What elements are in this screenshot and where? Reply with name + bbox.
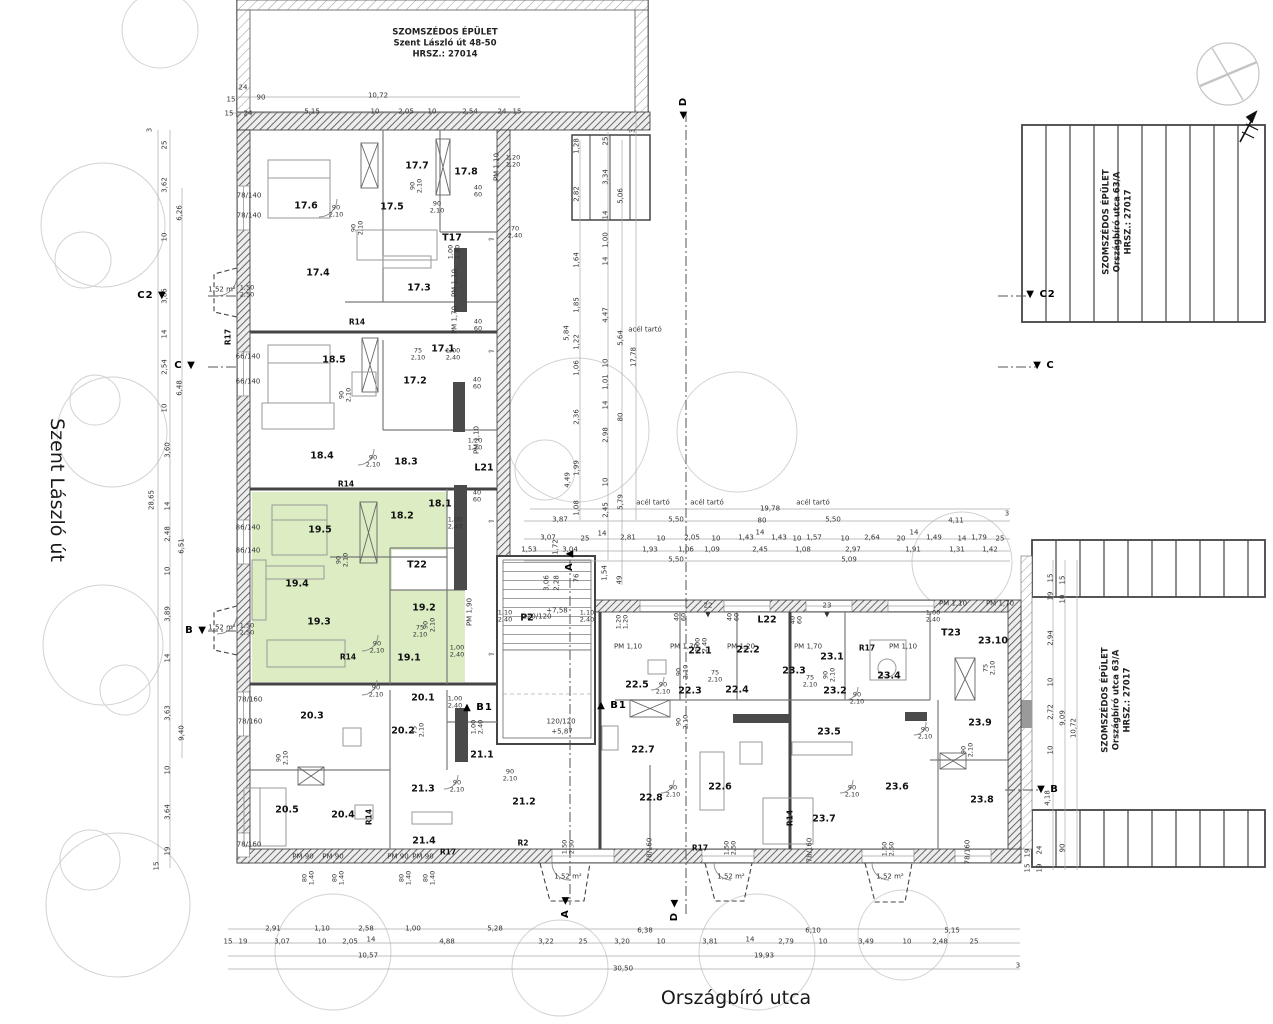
dimension-label: 5,15: [944, 928, 960, 935]
room-number-label: 22.6: [708, 782, 731, 792]
dimension-pair-label: 902,10: [450, 780, 464, 795]
annotation-label: 120/120: [546, 719, 575, 726]
annotation-label: 120/120: [522, 614, 551, 621]
dimension-pair-label: 902,10: [351, 221, 366, 235]
dimension-label: 9,40: [179, 725, 186, 741]
dimension-pair-label: 752,10: [708, 670, 722, 685]
dimension-label: 5,09: [841, 557, 857, 564]
annotation-label: R17: [224, 329, 232, 345]
dimension-pair-label: 902,10: [276, 751, 291, 765]
dimension-label: 25: [579, 939, 588, 946]
neighbor-building-label-right-upper: SZOMSZÉDOS ÉPÜLET Országbíró utca 63/A H…: [1101, 169, 1134, 274]
dimension-pair-label: 902,10: [961, 743, 976, 757]
dimension-label: 10,72: [1071, 718, 1078, 738]
dimension-label: 10: [1060, 595, 1067, 604]
section-marker: D ◀: [670, 899, 680, 921]
dimension-pair-label: 1,002,40: [926, 610, 940, 625]
dimension-label: 10: [712, 536, 721, 543]
dimension-pair-label: 1,502,50: [724, 841, 739, 855]
dimension-label: 90: [1060, 844, 1067, 853]
dimension-label: 2,94: [1048, 630, 1055, 646]
dimension-pair-label: 1,502,50: [240, 623, 254, 638]
dimension-label: 15: [224, 939, 233, 946]
dimension-pair-label: 902,10: [503, 769, 517, 784]
room-number-label: 22.3: [678, 686, 701, 696]
dimension-label: 10: [165, 567, 172, 576]
dimension-label: 5,50: [668, 557, 684, 564]
dimension-pair-label: 1,002,40: [471, 720, 486, 734]
dimension-label: 10,72: [368, 93, 388, 100]
dimension-label: 1,08: [574, 500, 581, 516]
dimension-pair-label: 1,502,50: [562, 840, 577, 854]
dimension-pair-label: 1,502,50: [240, 285, 254, 300]
room-number-label: L22: [757, 615, 776, 625]
annotation-label: acél tartó: [690, 500, 724, 507]
room-number-label: 22.5: [625, 680, 648, 690]
dimension-label: 2,05: [342, 939, 358, 946]
dimension-label: 25: [996, 536, 1005, 543]
dimension-label: 4,11: [948, 518, 964, 525]
dimension-label: 2,64: [864, 535, 880, 542]
dimension-label: 90: [257, 95, 266, 102]
dimension-pair-label: 4060: [790, 616, 805, 624]
dimension-label: 14: [367, 937, 376, 944]
section-marker: B ▼: [185, 626, 207, 636]
dimension-label: 19: [239, 939, 248, 946]
dimension-pair-label: 902,10: [676, 715, 691, 729]
dimension-label: 10: [1048, 678, 1055, 687]
dimension-pair-label: 902,10: [366, 455, 380, 470]
dimension-pair-label: 902,10: [845, 785, 859, 800]
room-number-label: 19.4: [285, 579, 308, 589]
street-label-bottom: Országbíró utca: [661, 987, 811, 1009]
dimension-label: 10: [841, 536, 850, 543]
dimension-label: 5,15: [304, 109, 320, 116]
room-number-label: 21.3: [411, 784, 434, 794]
annotation-label: 86/140: [236, 548, 261, 555]
dimension-label: 1,06: [574, 360, 581, 376]
dimension-pair-label: 902,10: [329, 205, 343, 220]
room-number-label: 17.8: [454, 167, 477, 177]
dimension-label: 2,36: [574, 409, 581, 425]
annotation-label: acél tartó: [628, 327, 662, 334]
room-number-label: 22.8: [639, 793, 662, 803]
dimension-label: 2,72: [1048, 704, 1055, 720]
dimension-label: 5,50: [668, 517, 684, 524]
dimension-pair-label: 902,10: [656, 682, 670, 697]
dimension-label: 3,64: [165, 804, 172, 820]
dimension-pair-label: 1,102,40: [498, 610, 512, 625]
dimension-label: 3: [1016, 963, 1020, 970]
dimension-label: 15: [1048, 574, 1055, 583]
dimension-pair-label: 801,40: [399, 871, 414, 885]
dimension-label: 14: [756, 530, 765, 537]
dimension-pair-label: 801,40: [332, 871, 347, 885]
dimension-label: 2,91: [265, 926, 281, 933]
dimension-label: 2,05: [398, 109, 414, 116]
dimension-label: 25: [970, 939, 979, 946]
dimension-pair-label: 1,002,40: [695, 638, 710, 652]
room-number-label: 18.3: [394, 457, 417, 467]
dimension-label: 25: [581, 536, 590, 543]
annotation-label: PM 1,90: [467, 598, 474, 626]
annotation-label: R14: [786, 810, 794, 826]
room-number-label: 20.4: [331, 810, 354, 820]
dimension-pair-label: 752,10: [412, 723, 427, 737]
room-number-label: 23.7: [812, 814, 835, 824]
dimension-pair-label: 801,40: [302, 871, 317, 885]
dimension-pair-label: 902,10: [823, 668, 838, 682]
dimension-pair-label: 1,002,40: [448, 245, 463, 259]
dimension-label: 20: [897, 536, 906, 543]
room-number-label: 21.2: [512, 797, 535, 807]
dimension-label: 3: [147, 128, 154, 132]
dimension-label: 1,93: [642, 547, 658, 554]
dimension-pair-label: 902,10: [676, 665, 691, 679]
section-marker: ◀ D: [679, 97, 689, 119]
annotation-label: PM 1,10: [939, 601, 967, 608]
room-number-label: 23.6: [885, 782, 908, 792]
dimension-label: 5,79: [618, 494, 625, 510]
annotation-label: acél tartó: [796, 500, 830, 507]
dimension-label: 1,91: [905, 547, 921, 554]
annotation-label: PM 90: [387, 854, 408, 861]
annotation-label: ⇦: [488, 237, 494, 244]
dimension-label: 15: [225, 111, 234, 118]
dimension-label: 76: [574, 574, 581, 583]
dimension-pair-label: 1,002,40: [448, 696, 462, 711]
dimension-label: 1,42: [982, 547, 998, 554]
section-marker: ▲ B1: [597, 701, 627, 711]
dimension-label: 9,09: [1060, 710, 1067, 726]
room-number-label: 18.1: [428, 499, 451, 509]
neighbor-building-label-right-lower: SZOMSZÉDOS ÉPÜLET Országbíró utca 63/A H…: [1100, 647, 1133, 752]
dimension-label: 24: [244, 111, 253, 118]
annotation-label: ▼: [824, 612, 829, 619]
dimension-label: 3,20: [614, 939, 630, 946]
dimension-pair-label: 4060: [727, 613, 742, 621]
dimension-label: 1,28: [574, 138, 581, 154]
dimension-label: 14: [165, 502, 172, 511]
section-marker: ▼ C: [1033, 361, 1055, 371]
dimension-label: 3,87: [552, 517, 568, 524]
dimension-label: 3,62: [162, 177, 169, 193]
dimension-pair-label: 1,002,40: [450, 645, 464, 660]
dimension-label: 3,81: [702, 939, 718, 946]
dimension-label: 3: [1005, 511, 1009, 518]
floor-plan-page: Szent László út Országbíró utca SZOMSZÉD…: [0, 0, 1273, 1024]
label-layer: Szent László út Országbíró utca SZOMSZÉD…: [0, 0, 1273, 1024]
annotation-label: 1,52 m²: [717, 874, 744, 881]
dimension-label: 1,43: [738, 535, 754, 542]
annotation-label: ⇦: [488, 652, 494, 659]
dimension-label: 15: [1025, 864, 1032, 873]
dimension-pair-label: 1,002,40: [448, 517, 462, 532]
dimension-label: 2,98: [603, 427, 610, 443]
dimension-label: 2,05: [684, 535, 700, 542]
room-number-label: 21.1: [470, 750, 493, 760]
dimension-label: 14: [603, 401, 610, 410]
dimension-label: 2,58: [358, 926, 374, 933]
dimension-pair-label: 902,10: [666, 785, 680, 800]
dimension-pair-label: 902,10: [918, 727, 932, 742]
room-number-label: 18.2: [390, 511, 413, 521]
dimension-label: 2,54: [462, 109, 478, 116]
dimension-label: 10: [165, 766, 172, 775]
dimension-pair-label: 902,10: [410, 179, 425, 193]
room-number-label: T23: [941, 628, 961, 638]
dimension-pair-label: 702,40: [508, 226, 522, 241]
annotation-label: 78/160: [647, 838, 654, 863]
dimension-label: 15: [227, 97, 236, 104]
dimension-pair-label: 902,10: [430, 201, 444, 216]
annotation-label: 78/160: [807, 838, 814, 863]
dimension-label: 1,57: [806, 535, 822, 542]
room-number-label: 19.1: [397, 653, 420, 663]
dimension-label: 5,84: [564, 325, 571, 341]
annotation-label: 78/160: [237, 842, 262, 849]
room-number-label: 17.3: [407, 283, 430, 293]
annotation-label: R17: [440, 848, 456, 856]
room-number-label: 23.2: [823, 686, 846, 696]
dimension-label: 14: [910, 530, 919, 537]
dimension-label: 10: [603, 359, 610, 368]
dimension-label: 1,54: [602, 565, 609, 581]
dimension-pair-label: 4060: [473, 490, 481, 505]
dimension-label: 3,07: [540, 535, 556, 542]
dimension-label: 1,49: [926, 535, 942, 542]
room-number-label: 17.5: [380, 202, 403, 212]
annotation-label: PM 1,70: [452, 306, 459, 334]
annotation-label: ▼: [705, 612, 710, 619]
dimension-label: 3: [630, 129, 637, 133]
room-number-label: 20.5: [275, 805, 298, 815]
dimension-label: 2,97: [845, 547, 861, 554]
dimension-label: 2,28: [554, 575, 561, 591]
dimension-label: 1,22: [574, 334, 581, 350]
annotation-label: 23: [823, 603, 832, 610]
dimension-label: 3,06: [544, 575, 551, 591]
room-number-label: 23.10: [978, 636, 1008, 646]
annotation-label: R14: [338, 480, 354, 488]
annotation-label: 1,52 m²: [208, 625, 235, 632]
annotation-label: 1,52 m²: [876, 874, 903, 881]
room-number-label: 18.4: [310, 451, 333, 461]
dimension-label: 3,07: [274, 939, 290, 946]
annotation-label: 1,52 m²: [554, 874, 581, 881]
room-number-label: 21.4: [412, 836, 435, 846]
annotation-label: 78/160: [965, 840, 972, 865]
dimension-pair-label: 801,40: [423, 871, 438, 885]
dimension-label: 1,72: [553, 539, 560, 555]
annotation-label: PM 1,20: [727, 644, 755, 651]
room-number-label: 18.5: [322, 355, 345, 365]
dimension-label: 14: [165, 654, 172, 663]
room-number-label: T22: [407, 560, 427, 570]
room-number-label: 17.6: [294, 201, 317, 211]
dimension-label: 19: [1025, 849, 1032, 858]
dimension-label: 1,06: [678, 547, 694, 554]
dimension-label: 10: [657, 939, 666, 946]
dimension-label: 10: [903, 939, 912, 946]
dimension-label: 1,00: [603, 232, 610, 248]
dimension-label: 24: [239, 85, 248, 92]
dimension-label: 2,48: [165, 526, 172, 542]
dimension-label: 3,49: [858, 939, 874, 946]
section-marker: ▲ B1: [463, 703, 493, 713]
dimension-pair-label: 1,201,20: [468, 438, 482, 453]
annotation-label: 78/140: [237, 213, 262, 220]
dimension-label: 1,10: [314, 926, 330, 933]
dimension-label: 80: [758, 518, 767, 525]
dimension-label: 3,89: [165, 606, 172, 622]
dimension-label: 17,78: [631, 347, 638, 367]
dimension-label: 1,01: [603, 374, 610, 390]
dimension-label: 6,38: [637, 928, 653, 935]
dimension-label: 6,10: [805, 928, 821, 935]
annotation-label: 78/160: [238, 697, 263, 704]
room-number-label: 20.1: [411, 693, 434, 703]
dimension-label: 3,34: [603, 169, 610, 185]
dimension-label: 2,48: [932, 939, 948, 946]
room-number-label: 22.7: [631, 745, 654, 755]
annotation-label: R2: [518, 839, 529, 847]
room-number-label: 17.4: [306, 268, 329, 278]
dimension-pair-label: 902,10: [370, 641, 384, 656]
dimension-label: 19,93: [754, 953, 774, 960]
room-number-label: L21: [474, 463, 493, 473]
room-number-label: 17.2: [403, 376, 426, 386]
dimension-label: 2,54: [162, 359, 169, 375]
dimension-label: 1,43: [771, 535, 787, 542]
dimension-label: 2,81: [620, 535, 636, 542]
section-marker: A ◀: [561, 896, 571, 918]
dimension-label: 80: [618, 413, 625, 422]
room-number-label: 23.9: [968, 718, 991, 728]
dimension-label: 1,00: [405, 926, 421, 933]
dimension-label: 10,57: [358, 953, 378, 960]
room-number-label: 17.7: [405, 161, 428, 171]
section-marker: ▼ C2: [1026, 290, 1055, 300]
dimension-label: 10: [819, 939, 828, 946]
dimension-label: 14: [603, 211, 610, 220]
dimension-label: 24: [1037, 846, 1044, 855]
annotation-label: PM 1,10: [494, 153, 501, 181]
dimension-label: 49: [617, 576, 624, 585]
dimension-label: 3,22: [538, 939, 554, 946]
annotation-label: acél tartó: [636, 500, 670, 507]
dimension-pair-label: 1,201,20: [616, 615, 631, 629]
dimension-pair-label: 902,10: [850, 692, 864, 707]
dimension-pair-label: 752,10: [411, 348, 425, 363]
annotation-label: R17: [692, 844, 708, 852]
dimension-label: 5,28: [487, 926, 503, 933]
dimension-label: 15: [154, 862, 161, 871]
dimension-label: 10: [657, 536, 666, 543]
annotation-label: R14: [365, 809, 373, 825]
dimension-label: 4,47: [603, 307, 610, 323]
dimension-pair-label: 4060: [473, 377, 481, 392]
dimension-label: 1,99: [574, 460, 581, 476]
dimension-label: 30,50: [613, 966, 633, 973]
neighbor-building-label-top: SZOMSZÉDOS ÉPÜLET Szent László út 48-50 …: [392, 27, 497, 60]
section-marker: C ▼: [174, 361, 196, 371]
dimension-label: 15: [513, 109, 522, 116]
dimension-label: 19: [1037, 864, 1044, 873]
dimension-label: 1,31: [949, 547, 965, 554]
annotation-label: R14: [340, 653, 356, 661]
annotation-label: PM 1,10: [614, 644, 642, 651]
dimension-pair-label: 1,502,50: [882, 842, 897, 856]
dimension-label: 10: [371, 109, 380, 116]
dimension-label: 10: [162, 404, 169, 413]
annotation-label: PM 90: [412, 854, 433, 861]
dimension-label: 6,26: [177, 205, 184, 221]
dimension-label: 10: [428, 109, 437, 116]
dimension-label: 14: [603, 257, 610, 266]
section-marker: ▼ B: [1037, 785, 1059, 795]
room-number-label: 22.4: [725, 685, 748, 695]
dimension-label: 4,49: [565, 472, 572, 488]
room-number-label: 19.3: [307, 617, 330, 627]
dimension-label: 14: [746, 937, 755, 944]
dimension-label: 2,45: [752, 547, 768, 554]
dimension-label: 1,79: [971, 535, 987, 542]
dimension-pair-label: 1,002,40: [446, 348, 460, 363]
dimension-pair-label: 1,201,20: [506, 155, 520, 170]
annotation-label: R14: [349, 318, 365, 326]
room-number-label: 23.5: [817, 727, 840, 737]
dimension-label: 19: [1048, 592, 1055, 601]
dimension-pair-label: 752,10: [803, 675, 817, 690]
annotation-label: PM 1,10: [452, 269, 459, 297]
dimension-label: 3,63: [165, 705, 172, 721]
annotation-label: ⇦: [488, 349, 494, 356]
dimension-pair-label: 4060: [474, 319, 482, 334]
annotation-label: 78/160: [238, 719, 263, 726]
dimension-label: 10: [318, 939, 327, 946]
dimension-label: 24: [498, 109, 507, 116]
annotation-label: 78/140: [237, 193, 262, 200]
dimension-label: 10: [1048, 746, 1055, 755]
dimension-label: 1,08: [795, 547, 811, 554]
dimension-label: 15: [1060, 576, 1067, 585]
dimension-label: 5,50: [825, 517, 841, 524]
dimension-label: 1,09: [704, 547, 720, 554]
section-marker: C2 ▼: [137, 291, 166, 301]
dimension-label: 5,64: [618, 330, 625, 346]
dimension-label: 2,45: [603, 502, 610, 518]
dimension-label: 14: [598, 531, 607, 538]
dimension-label: 19,78: [760, 506, 780, 513]
dimension-label: 14: [958, 536, 967, 543]
dimension-pair-label: 1,102,40: [580, 610, 594, 625]
dimension-label: 2,82: [574, 186, 581, 202]
room-number-label: 20.3: [300, 711, 323, 721]
annotation-label: +5,87: [551, 729, 572, 736]
street-label-left: Szent László út: [46, 418, 68, 562]
room-number-label: 23.1: [820, 652, 843, 662]
room-number-label: 23.4: [877, 671, 900, 681]
annotation-label: PM 1,70: [794, 644, 822, 651]
dimension-pair-label: 752,10: [413, 625, 427, 640]
annotation-label: PM 90: [292, 854, 313, 861]
dimension-label: 2,79: [778, 939, 794, 946]
annotation-label: ⇦: [488, 519, 494, 526]
annotation-label: 1,52 m²: [208, 287, 235, 294]
annotation-label: 22: [704, 603, 713, 610]
room-number-label: 19.5: [308, 525, 331, 535]
